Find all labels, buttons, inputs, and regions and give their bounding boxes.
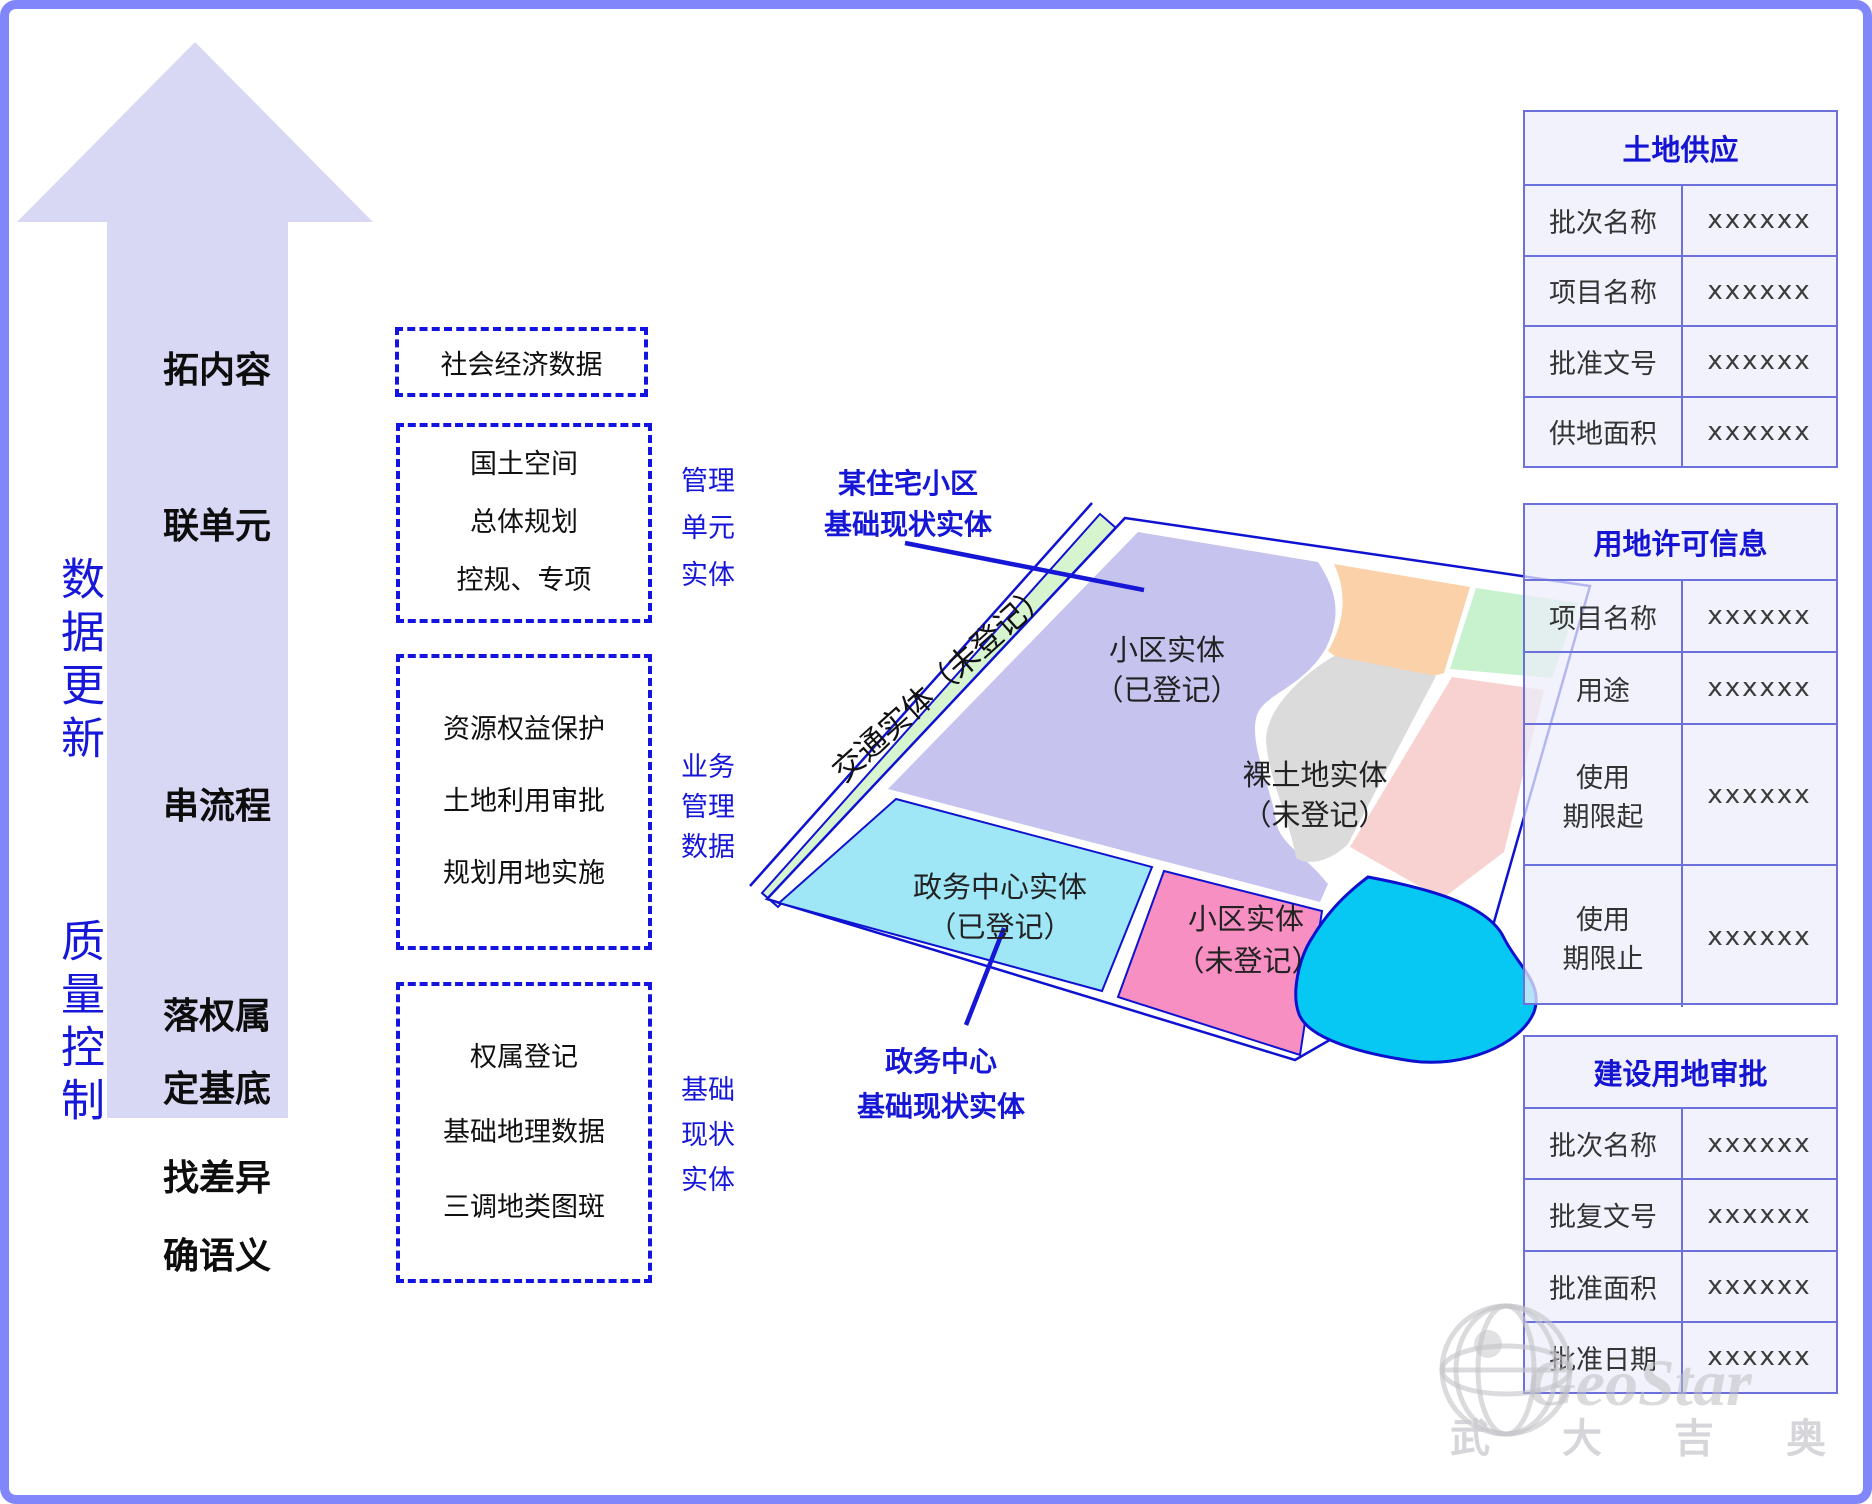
table-cell-value: xxxxxx — [1683, 184, 1836, 255]
table-cell-value: xxxxxx — [1683, 864, 1836, 1007]
label-residential-unregistered-2: （未登记） — [1175, 944, 1320, 978]
arrow-step-chain-process: 串流程 — [87, 777, 347, 829]
table-cell-label: 项目名称 — [1525, 579, 1683, 651]
label-residential-unregistered-1: 小区实体 — [1188, 902, 1304, 936]
diagram-canvas: 拓内容 联单元 串流程 落权属 定基底 找差异 确语义 数据更新 质量控制 社会… — [0, 0, 1872, 1504]
box-business-management: 资源权益保护 土地利用审批 规划用地实施 — [396, 654, 652, 950]
table-cell-value: xxxxxx — [1683, 1321, 1836, 1392]
box-line: 权属登记 — [470, 1020, 578, 1095]
table-cell-value: xxxxxx — [1683, 325, 1836, 396]
label-line: 实体 — [660, 1158, 756, 1203]
arrow-step-semantics: 确语义 — [87, 1227, 347, 1279]
arrow-step-ownership: 落权属 — [87, 987, 347, 1039]
table-cell-label: 批准文号 — [1525, 325, 1683, 396]
vertical-label-data-update: 数据更新 — [34, 556, 110, 768]
table-cell-label: 用途 — [1525, 651, 1683, 723]
box-socioeconomic-data: 社会经济数据 — [395, 327, 648, 397]
table-cell-value: xxxxxx — [1683, 1250, 1836, 1321]
table-cell-label: 批复文号 — [1525, 1178, 1683, 1249]
annotation-gov-bottom-2: 基础现状实体 — [857, 1090, 1026, 1123]
box-line: 总体规划 — [470, 494, 578, 552]
table-cell-value: xxxxxx — [1683, 1107, 1836, 1178]
table-cell-value: xxxxxx — [1683, 723, 1836, 864]
box-line: 控规、专项 — [457, 552, 592, 610]
table-cell-label: 使用 期限起 — [1525, 723, 1683, 864]
table-title: 用地许可信息 — [1525, 505, 1836, 579]
box-line: 资源权益保护 — [443, 694, 605, 766]
vertical-label-quality-control: 质量控制 — [34, 918, 110, 1130]
table-construction-land-approval: 建设用地审批 批次名称 xxxxxx 批复文号 xxxxxx 批准面积 xxxx… — [1523, 1035, 1838, 1394]
table-cell-value: xxxxxx — [1683, 651, 1836, 723]
table-cell-label: 批次名称 — [1525, 1107, 1683, 1178]
table-cell-label: 项目名称 — [1525, 255, 1683, 326]
annotation-residential-top-2: 基础现状实体 — [824, 508, 993, 541]
annotation-gov-bottom-1: 政务中心 — [885, 1045, 997, 1078]
table-cell-label: 批准日期 — [1525, 1321, 1683, 1392]
box-basic-status: 权属登记 基础地理数据 三调地类图斑 — [396, 982, 652, 1283]
label-bare-land-1: 裸土地实体 — [1242, 758, 1387, 792]
annotation-residential-top-1: 某住宅小区 — [838, 467, 978, 500]
label-residential-registered-2: （已登记） — [1094, 673, 1239, 707]
table-cell-value: xxxxxx — [1683, 255, 1836, 326]
arrow-step-expand-content: 拓内容 — [87, 341, 347, 393]
box-line: 三调地类图斑 — [443, 1170, 605, 1245]
table-cell-label: 批准面积 — [1525, 1250, 1683, 1321]
arrow-step-differences: 找差异 — [87, 1149, 347, 1201]
parcel-map: 交通实体（未登记） 小区实体 （已登记） 裸土地实体 （未登记） 政务中心实体 … — [730, 380, 1600, 1140]
table-title: 建设用地审批 — [1525, 1037, 1836, 1107]
table-cell-value: xxxxxx — [1683, 1178, 1836, 1249]
arrow-step-base: 定基底 — [87, 1060, 347, 1112]
watermark-company-text: 武大吉奥 — [1450, 1406, 1872, 1464]
box-line: 社会经济数据 — [441, 343, 603, 382]
label-bare-land-2: （未登记） — [1242, 798, 1387, 832]
box-line: 规划用地实施 — [443, 838, 605, 910]
table-land-supply: 土地供应 批次名称 xxxxxx 项目名称 xxxxxx 批准文号 xxxxxx… — [1523, 110, 1838, 468]
table-title: 土地供应 — [1525, 112, 1836, 184]
arrow-step-link-units: 联单元 — [87, 497, 347, 549]
table-cell-label: 使用 期限止 — [1525, 864, 1683, 1007]
table-cell-label: 批次名称 — [1525, 184, 1683, 255]
table-cell-value: xxxxxx — [1683, 396, 1836, 467]
label-gov-center-1: 政务中心实体 — [913, 870, 1087, 904]
label-residential-registered-1: 小区实体 — [1109, 633, 1225, 667]
box-line: 国土空间 — [470, 436, 578, 494]
table-land-use-permit: 用地许可信息 项目名称 xxxxxx 用途 xxxxxx 使用 期限起 xxxx… — [1523, 503, 1838, 1005]
box-line: 土地利用审批 — [443, 766, 605, 838]
box-territorial-planning: 国土空间 总体规划 控规、专项 — [396, 423, 652, 623]
box-line: 基础地理数据 — [443, 1095, 605, 1170]
label-gov-center-2: （已登记） — [927, 910, 1072, 944]
table-cell-value: xxxxxx — [1683, 579, 1836, 651]
table-cell-label: 供地面积 — [1525, 396, 1683, 467]
